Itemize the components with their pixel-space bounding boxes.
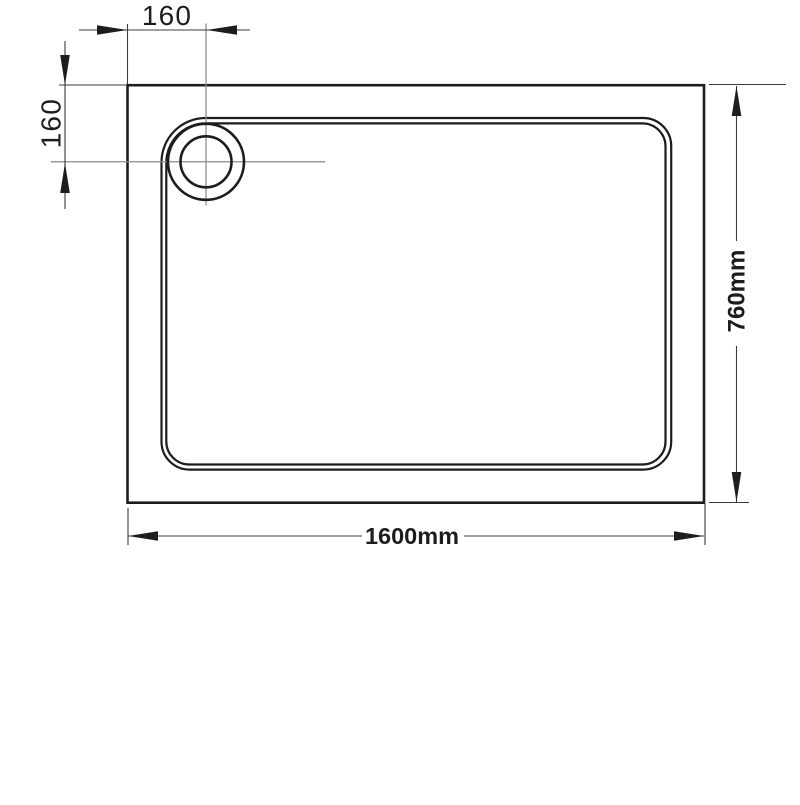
svg-text:160: 160 — [142, 0, 192, 31]
svg-text:160: 160 — [36, 98, 67, 148]
svg-text:760mm: 760mm — [724, 250, 751, 333]
svg-text:1600mm: 1600mm — [365, 523, 459, 549]
